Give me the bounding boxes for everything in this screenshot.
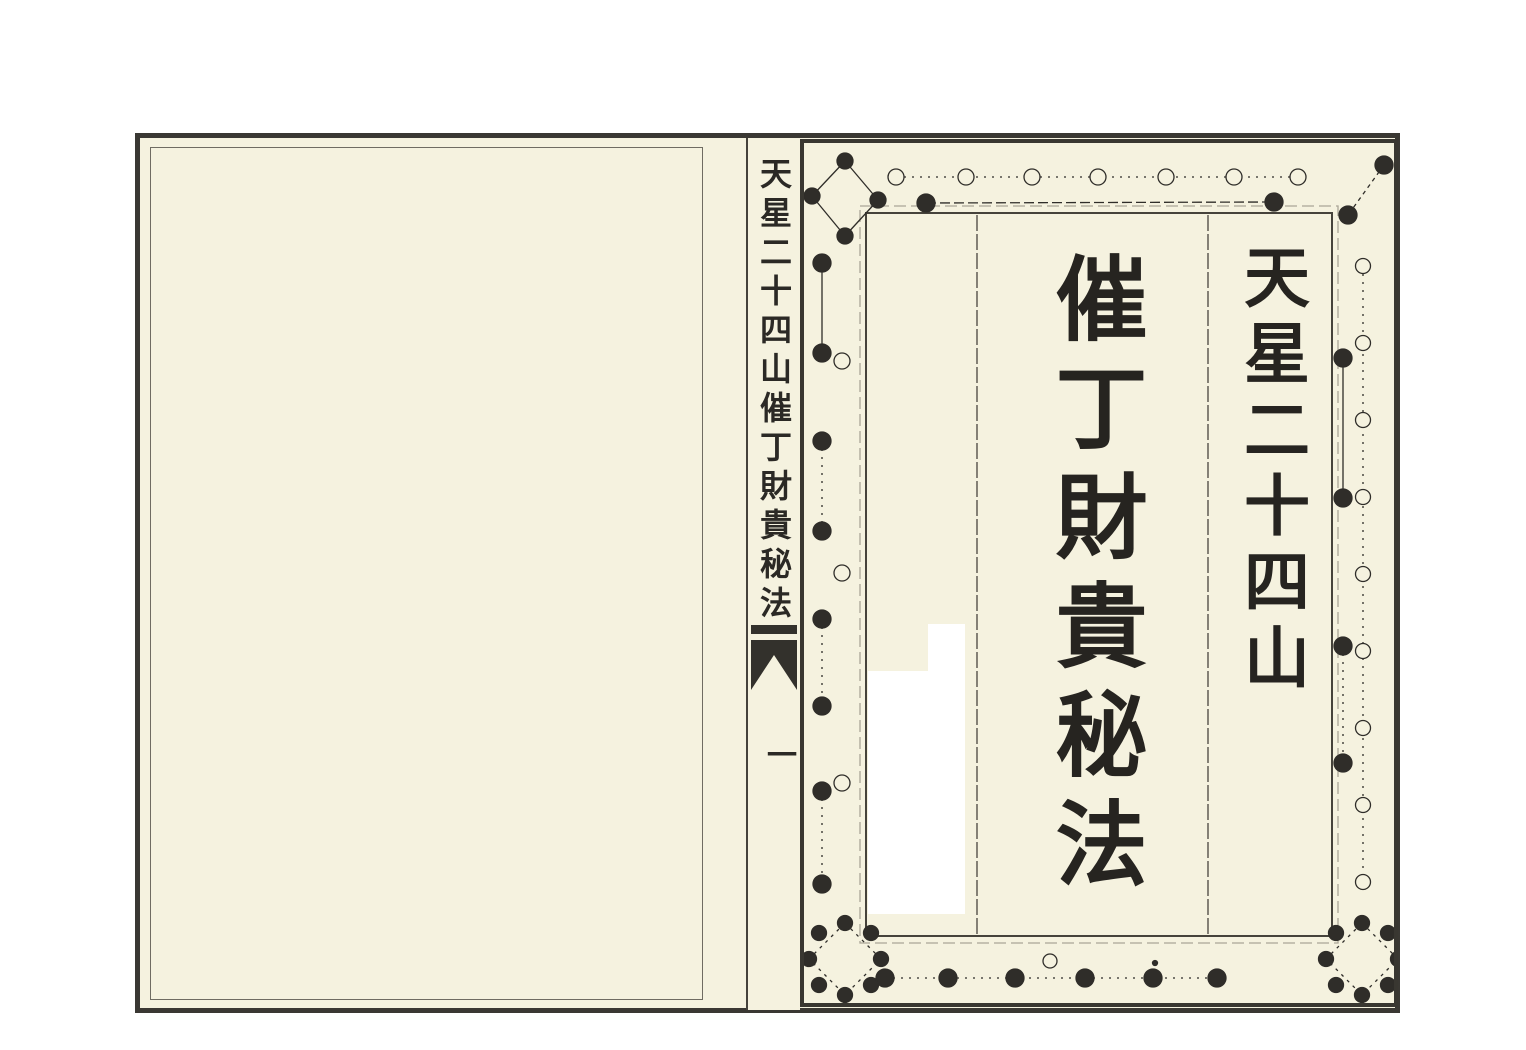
fishtail-mark	[751, 640, 797, 690]
right-circle-chain-ornament	[1356, 259, 1371, 890]
right-dot-chain-ornament	[1334, 349, 1352, 772]
spine-title: 天星二十四山催丁財貴秘法	[748, 152, 800, 630]
scan-white-patch-top	[928, 624, 965, 673]
left-blank-page	[150, 147, 703, 1000]
fishtail-bar-mark	[751, 625, 797, 634]
scan-white-patch	[868, 671, 965, 914]
title-page-series-title: 天星二十四山	[1208, 243, 1332, 863]
title-page-main-title: 催丁財貴秘法	[977, 251, 1208, 951]
left-dot-chain-ornament	[813, 254, 850, 893]
bottom-dot-row-ornament	[876, 954, 1226, 987]
top-circle-row-ornament	[888, 169, 1306, 185]
top-dot-dash-ornament	[917, 193, 1283, 212]
dot-ornament-top-right	[1339, 156, 1393, 224]
dot-diamond-ornament-bottom-left	[804, 916, 889, 1003]
dot-diamond-ornament-bottom-right	[1319, 916, 1395, 1003]
spine-page-number: 一	[748, 724, 800, 784]
title-page: 天星二十四山 催丁財貴秘法	[800, 139, 1398, 1007]
book-spine-column: 天星二十四山催丁財貴秘法 一	[746, 138, 800, 1010]
dot-diamond-ornament-top-left	[804, 153, 886, 244]
